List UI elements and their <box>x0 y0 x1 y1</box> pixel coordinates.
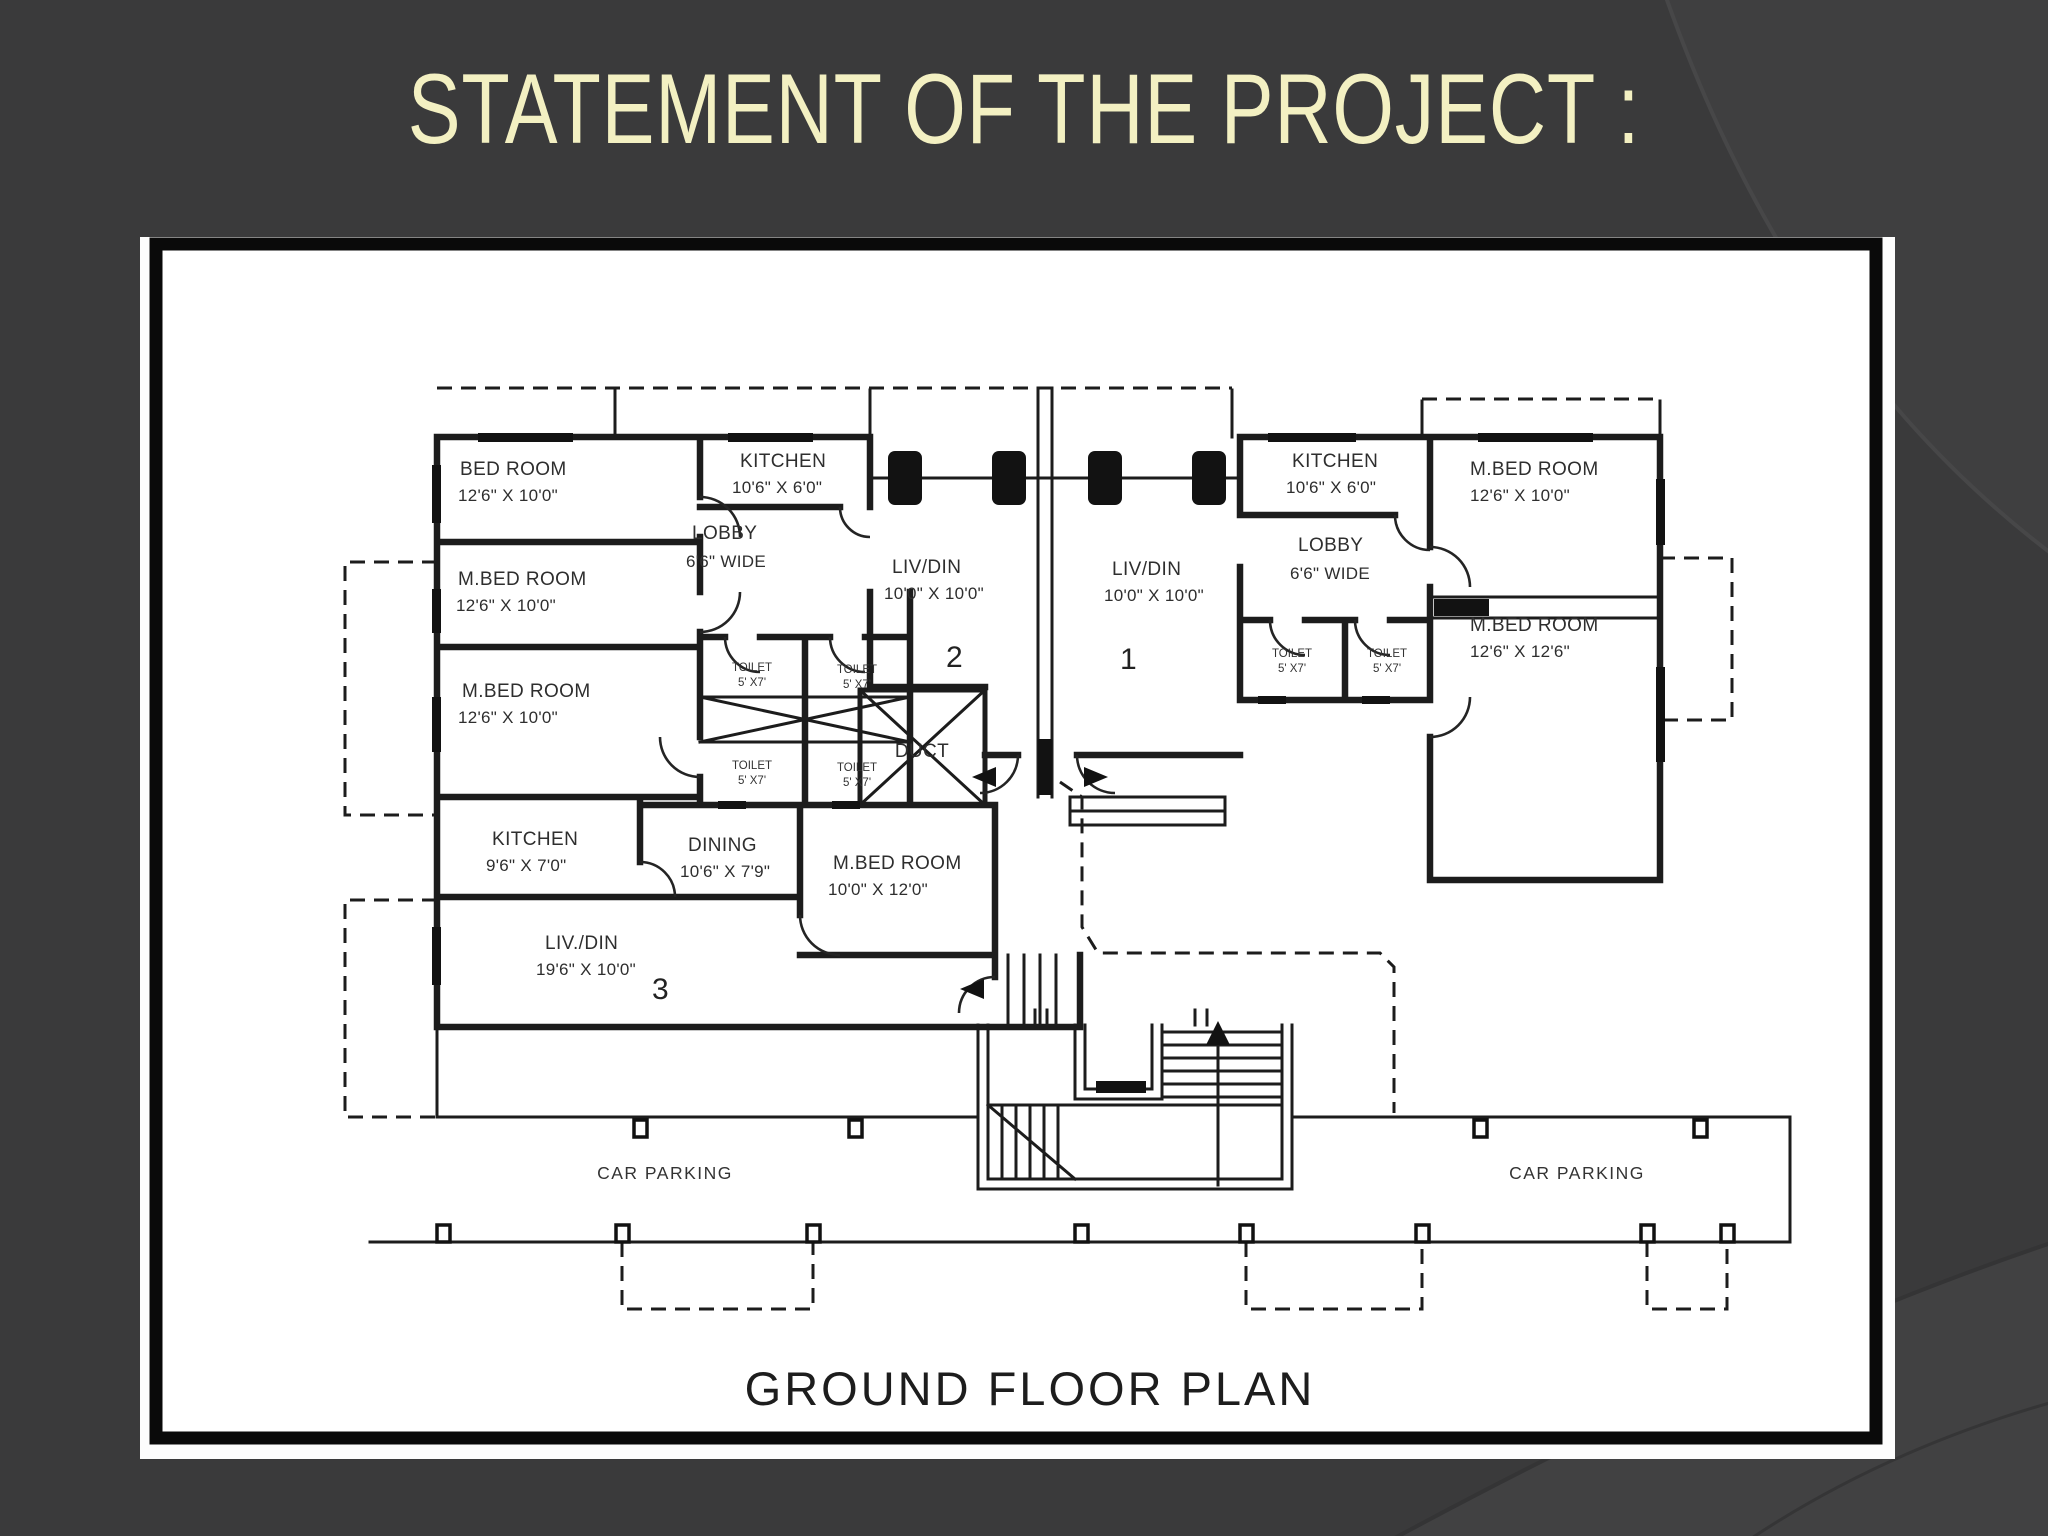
plan-caption: GROUND FLOOR PLAN <box>745 1362 1316 1415</box>
room-dims: 12'6" X 10'0" <box>1470 486 1570 505</box>
room-label: M.BED ROOM <box>833 853 962 874</box>
svg-text:TOILET: TOILET <box>732 760 772 772</box>
svg-text:5' X7': 5' X7' <box>843 679 871 691</box>
room-dims: 10'0" X 12'0" <box>828 880 928 899</box>
car-parking-label-left: CAR PARKING <box>597 1163 733 1183</box>
room-label: LOBBY <box>692 523 757 544</box>
svg-text:TOILET: TOILET <box>1367 648 1407 660</box>
room-dims: 6'6" WIDE <box>686 552 766 571</box>
room-label: KITCHEN <box>740 451 826 472</box>
room-label: LIV/DIN <box>1112 559 1181 580</box>
room-dims: 12'6" X 12'6" <box>1470 642 1570 661</box>
room-dims: 10'6" X 7'9" <box>680 862 770 881</box>
svg-text:5' X7': 5' X7' <box>738 677 766 689</box>
room-label: BED ROOM <box>460 459 567 480</box>
plan-border-frame <box>156 244 1876 1438</box>
svg-text:5' X7': 5' X7' <box>1278 663 1306 675</box>
room-dims: 12'6" X 10'0" <box>458 708 558 727</box>
presentation-slide: STATEMENT OF THE PROJECT : <box>0 0 2048 1536</box>
flat-number-1: 1 <box>1120 643 1137 676</box>
room-dims: 10'6" X 6'0" <box>732 478 822 497</box>
room-label: LIV./DIN <box>545 933 618 954</box>
svg-text:5' X7': 5' X7' <box>1373 663 1401 675</box>
room-label: M.BED ROOM <box>1470 459 1599 480</box>
room-dims: 12'6" X 10'0" <box>458 486 558 505</box>
room-dims: 19'6" X 10'0" <box>536 960 636 979</box>
svg-text:5' X7': 5' X7' <box>843 777 871 789</box>
room-dims: 10'6" X 6'0" <box>1286 478 1376 497</box>
slide-title: STATEMENT OF THE PROJECT : <box>205 52 1843 166</box>
room-label: KITCHEN <box>492 829 578 850</box>
svg-text:TOILET: TOILET <box>732 662 772 674</box>
room-dims: 10'0" X 10'0" <box>884 584 984 603</box>
room-label: M.BED ROOM <box>458 569 587 590</box>
room-label: LIV/DIN <box>892 557 961 578</box>
room-dims: 6'6" WIDE <box>1290 564 1370 583</box>
room-dims: 12'6" X 10'0" <box>456 596 556 615</box>
duct-label: DUCT <box>895 741 949 762</box>
room-label: KITCHEN <box>1292 451 1378 472</box>
floor-plan-figure: BED ROOM 12'6" X 10'0" KITCHEN 10'6" X 6… <box>140 237 1895 1459</box>
svg-text:TOILET: TOILET <box>837 762 877 774</box>
car-parking-label-right: CAR PARKING <box>1509 1163 1645 1183</box>
flat-number-2: 2 <box>946 641 963 674</box>
room-label: M.BED ROOM <box>1470 615 1599 636</box>
svg-text:TOILET: TOILET <box>1272 648 1312 660</box>
svg-text:5' X7': 5' X7' <box>738 775 766 787</box>
room-label: LOBBY <box>1298 535 1363 556</box>
svg-text:TOILET: TOILET <box>837 664 877 676</box>
flat-number-3: 3 <box>652 973 669 1006</box>
room-label: M.BED ROOM <box>462 681 591 702</box>
room-dims: 9'6" X 7'0" <box>486 856 566 875</box>
room-dims: 10'0" X 10'0" <box>1104 586 1204 605</box>
room-label: DINING <box>688 835 757 856</box>
